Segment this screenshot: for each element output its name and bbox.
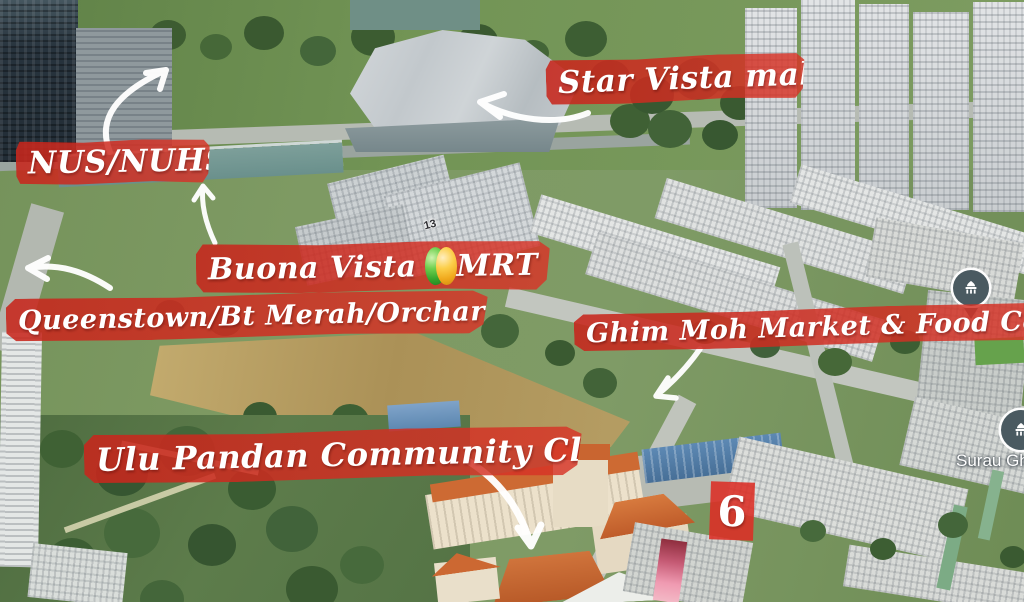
building-residential-tower [859,4,909,210]
building-residential-tower [973,2,1024,212]
trees [800,520,826,542]
sports-field [974,337,1024,366]
surau-place-text: Surau Gh [956,451,1024,470]
building-residential-tower [745,8,797,208]
label-queenstown-text: Queenstown/Bt Merah/Orchard [18,295,505,336]
building-white-tower-left [0,332,42,568]
label-buona-vista-text: Buona Vista [208,249,417,287]
label-buona-vista: Buona Vista MRT [196,240,551,295]
building-dark-tower [0,0,78,162]
ghim-moh-arrow [656,349,700,398]
aerial-map-scene: Star Vista mall NUS/NUHS Buona Vista MRT… [0,0,1024,602]
building-residential-tower [913,12,969,210]
surau-glyph [1011,420,1024,440]
block-6-marker: 6 [709,481,755,541]
yellow-balloon-icon [435,247,456,285]
station-arrow [194,186,215,243]
label-star-vista-text: Star Vista mall [557,56,824,101]
building-top-center [350,0,480,30]
label-ulu-pandan-text: Ulu Pandan Community Club [96,430,629,479]
mosque-pin-icon [953,270,989,306]
trees [40,430,84,468]
label-mrt-text: MRT [456,247,538,283]
label-nus-text: NUS/NUHS [28,142,229,181]
building-blue-roof [387,401,461,432]
building-block-bottom-left [27,543,127,602]
block-6-text: 6 [717,486,748,536]
mosque-glyph [961,278,981,298]
label-nus: NUS/NUHS [16,138,211,185]
surau-place-label: Surau Gh [956,451,1024,471]
